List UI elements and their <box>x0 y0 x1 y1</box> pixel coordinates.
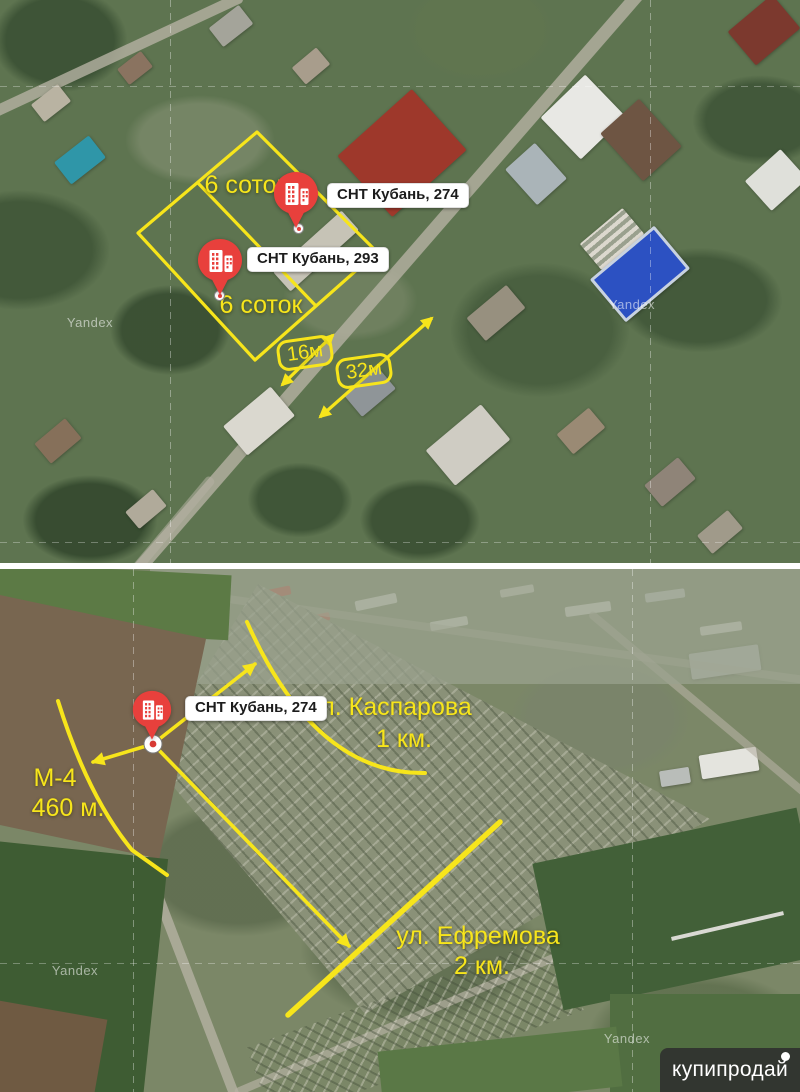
listing-photo-montage: 6 соток 6 соток 16м 32м СНТ Кубань, 274 … <box>0 0 800 1092</box>
pin-label-274-overview[interactable]: СНТ Кубань, 274 <box>185 696 327 721</box>
yandex-watermark: Yandex <box>67 315 113 330</box>
brand-name: купипродай <box>672 1058 788 1082</box>
yandex-watermark: Yandex <box>609 297 655 312</box>
map-divider-gap <box>0 563 800 569</box>
kupiproday-brand-badge: купипродай <box>660 1048 800 1092</box>
graticule-line <box>0 963 800 964</box>
m4-distance-label: 460 м. <box>32 795 105 821</box>
graticule-line <box>650 0 651 563</box>
kasparova-distance-label: 1 км. <box>376 726 432 752</box>
graticule-line <box>170 0 171 563</box>
map-pin-293 <box>196 238 244 300</box>
efremova-distance-label: 2 км. <box>454 953 510 979</box>
yandex-watermark: Yandex <box>52 963 98 978</box>
graticule-line <box>632 569 633 1092</box>
kasparova-street-label: ул. Каспарова <box>308 694 472 720</box>
city-blocks <box>150 569 800 684</box>
yandex-watermark: Yandex <box>604 1031 650 1046</box>
pin-label-293[interactable]: СНТ Кубань, 293 <box>247 247 389 272</box>
efremova-street-label: ул. Ефремова <box>396 923 559 949</box>
pin-label-274-top[interactable]: СНТ Кубань, 274 <box>327 183 469 208</box>
map-pin-274 <box>272 171 320 233</box>
graticule-line <box>0 542 800 543</box>
brand-dot-icon <box>781 1052 790 1061</box>
bottom-satellite-map[interactable]: СНТ Кубань, 274 ул. Каспарова 1 км. М-4 … <box>0 569 800 1092</box>
map-pin-274-overview <box>131 690 173 744</box>
graticule-line <box>133 569 134 1092</box>
graticule-line <box>0 86 800 87</box>
top-satellite-map[interactable]: 6 соток 6 соток 16м 32м СНТ Кубань, 274 … <box>0 0 800 563</box>
m4-street-label: М-4 <box>33 765 76 791</box>
